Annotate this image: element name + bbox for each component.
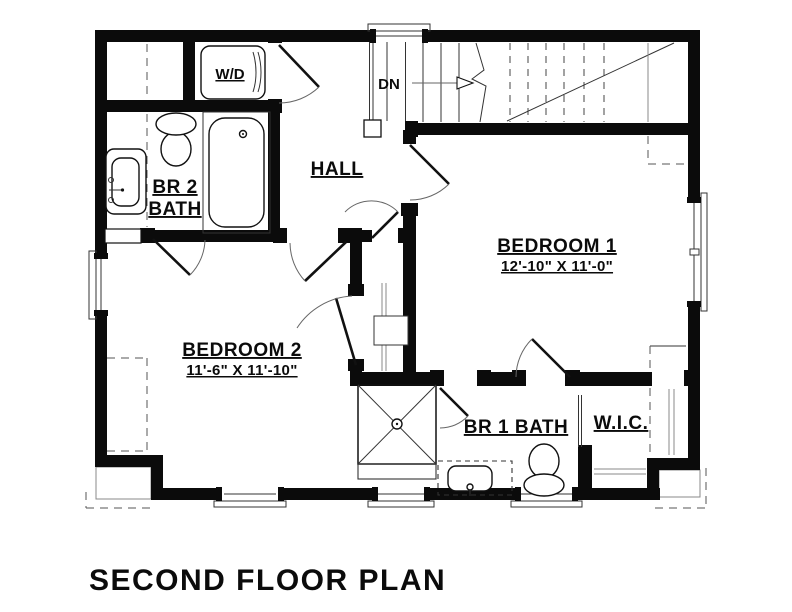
window-left <box>89 251 108 319</box>
roofline-dashes <box>86 467 706 508</box>
door-bedroom2-closet <box>297 296 356 365</box>
bedroom2-label: BEDROOM 2 <box>182 340 302 361</box>
door-br2-bath <box>153 239 205 275</box>
door-bedroom2 <box>290 242 346 281</box>
stairs-dn-label: DN <box>378 76 400 93</box>
bedroom1-dimensions: 12'-10" X 11'-0" <box>501 258 613 275</box>
toilet-br2 <box>156 113 196 166</box>
shower <box>358 385 436 479</box>
sink-vanity-br2 <box>106 149 146 214</box>
window-right <box>687 193 707 311</box>
stairs-down-arrow <box>412 77 473 89</box>
toilet-br1 <box>524 444 564 496</box>
wic-label: W.I.C. <box>594 413 649 434</box>
floor-plan-drawing: DN <box>0 0 792 612</box>
floor-plan-page: DN <box>0 0 792 612</box>
bedroom1-label: BEDROOM 1 <box>497 236 617 257</box>
br2-bath-label-line2: BATH <box>148 199 201 220</box>
bathtub <box>203 112 270 233</box>
window-stair-landing <box>368 24 430 43</box>
bedroom2-closet-shelf <box>374 283 408 371</box>
window-shower <box>368 487 434 507</box>
window-bedroom2 <box>214 487 286 507</box>
shower-curb <box>358 464 436 479</box>
br1-bath-label: BR 1 BATH <box>464 417 568 438</box>
laundry-label: W/D <box>215 66 244 83</box>
hall-label: HALL <box>311 159 364 180</box>
br2-bath-label-line1: BR 2 <box>152 177 197 198</box>
sheet-title: SECOND FLOOR PLAN <box>89 564 446 597</box>
door-laundry <box>279 45 319 103</box>
door-bedroom1 <box>410 145 449 200</box>
bedroom2-dimensions: 11'-6" X 11'-10" <box>186 362 297 379</box>
low-wall <box>105 229 141 243</box>
